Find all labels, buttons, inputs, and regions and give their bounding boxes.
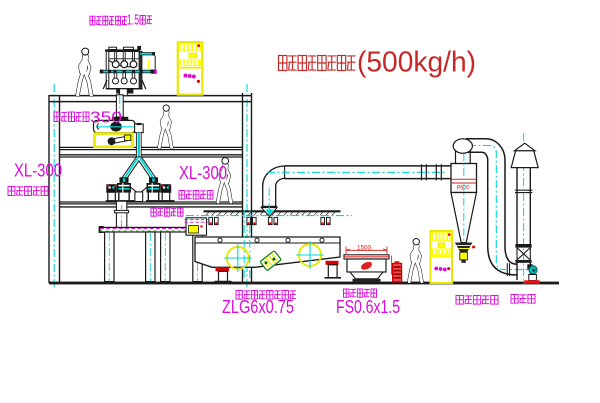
svg-text:XL-300: XL-300 [14,161,62,181]
svg-text:(500kg/h): (500kg/h) [357,47,476,79]
svg-text:FS0.6x1.5: FS0.6x1.5 [336,297,400,317]
svg-text:XL-300: XL-300 [179,163,227,183]
svg-text:1.5: 1.5 [127,12,139,29]
svg-text:ZLG6x0.75: ZLG6x0.75 [222,297,294,317]
svg-text:1500: 1500 [357,245,371,252]
svg-text:350: 350 [90,110,122,127]
